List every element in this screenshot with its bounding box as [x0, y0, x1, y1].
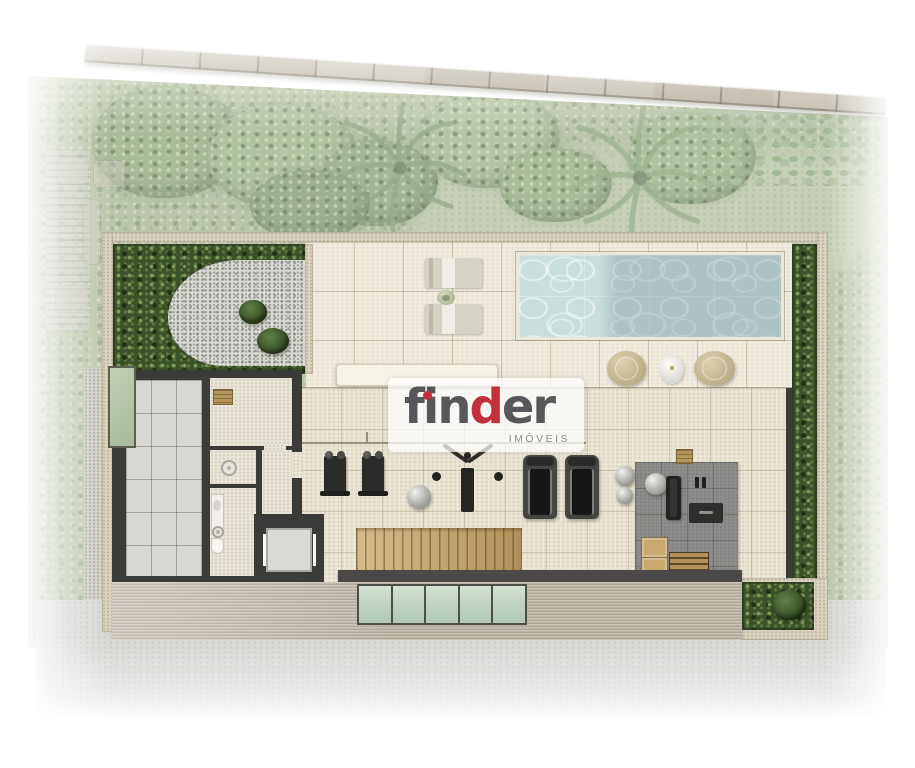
logo-word-part2: er — [502, 379, 554, 435]
cable-machine-stack — [494, 472, 503, 481]
premise-wall-right — [817, 232, 828, 634]
dumbbell — [695, 477, 699, 488]
glass-panel — [493, 586, 525, 623]
toilet — [211, 538, 224, 554]
top-fade — [0, 0, 915, 135]
premise-wall-top — [102, 232, 828, 242]
shrub — [239, 300, 267, 324]
shrub — [257, 328, 289, 354]
elevator-door — [263, 534, 266, 566]
logo-word: finder — [404, 382, 554, 432]
treadmill — [523, 455, 557, 519]
pool-side-table — [659, 355, 684, 384]
sun-lounger — [424, 258, 482, 288]
exercise-ball — [616, 487, 633, 504]
glass-panel — [426, 586, 458, 623]
exercise-ball — [615, 466, 635, 486]
cable-machine-knob — [464, 452, 471, 459]
wood-louver-deck — [356, 528, 522, 572]
treadmill — [565, 455, 599, 519]
cable-machine-pad — [461, 468, 474, 512]
shrub — [772, 590, 806, 620]
door-gap — [264, 444, 286, 451]
vestibule — [262, 450, 292, 514]
sun-lounger — [424, 304, 482, 334]
dumbbell-rack — [362, 456, 384, 492]
exercise-ball — [407, 485, 431, 509]
shower-drain — [221, 460, 237, 476]
pouf-ottoman — [607, 351, 646, 386]
side-table — [437, 290, 455, 305]
glass-panel — [393, 586, 425, 623]
pool-deep-end — [598, 255, 781, 337]
multiuse-room — [126, 380, 202, 576]
garden-deck-divider — [305, 244, 313, 374]
side-glass-panel — [108, 366, 136, 448]
facade-parapet — [338, 570, 742, 582]
door-gap — [292, 452, 302, 478]
floor-drain — [212, 526, 224, 538]
bottom-fade — [0, 636, 915, 768]
logo-word-part1: fin — [404, 379, 470, 435]
planter-box — [742, 582, 814, 630]
glass-panel — [359, 586, 391, 623]
dumbbell — [702, 477, 706, 488]
zen-garden — [113, 244, 305, 374]
elevator-door — [313, 534, 316, 566]
workout-mat — [689, 503, 723, 523]
floor-plan-stage: finder IMÓVEIS — [0, 0, 915, 768]
plyo-box — [641, 537, 668, 558]
watermark-logo: finder IMÓVEIS — [388, 378, 584, 452]
cable-machine-stack — [432, 472, 441, 481]
logo-i-dot — [423, 391, 432, 400]
exercise-ball — [645, 473, 667, 495]
elevator-cab — [266, 528, 312, 572]
logo-accent-letter: d — [470, 379, 502, 435]
glass-panel — [460, 586, 492, 623]
hedge-strip — [792, 244, 817, 584]
pouf-ottoman — [694, 351, 735, 386]
gravel-patio — [168, 260, 305, 366]
sauna-bench — [213, 389, 233, 405]
swimming-pool — [516, 252, 784, 340]
glass-panel-row — [357, 584, 527, 625]
logo-subtitle: IMÓVEIS — [509, 433, 570, 445]
wooden-stool — [676, 449, 693, 464]
ceiling-track-tick — [366, 432, 368, 442]
weight-bench — [666, 476, 681, 520]
dumbbell-rack — [324, 456, 346, 492]
